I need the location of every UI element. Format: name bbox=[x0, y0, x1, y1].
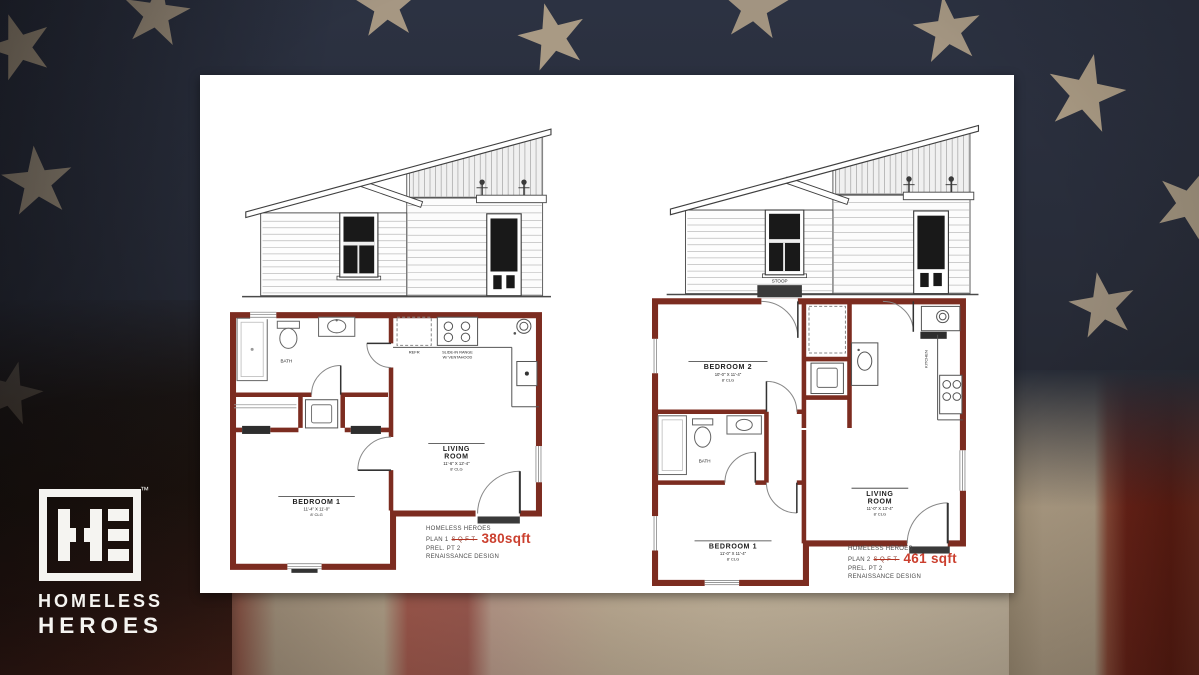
elevation-drawing-plan-2 bbox=[646, 87, 986, 303]
window bbox=[337, 213, 381, 280]
svg-text:ROOM: ROOM bbox=[868, 497, 892, 505]
svg-text:10'-0" X 11'-4": 10'-0" X 11'-4" bbox=[715, 372, 742, 377]
trademark-symbol: ™ bbox=[140, 485, 149, 495]
svg-text:LIVING: LIVING bbox=[443, 446, 470, 453]
bath-label: BATH bbox=[280, 359, 292, 364]
flag-star-icon: ★ bbox=[0, 0, 69, 99]
plan-1-caption: HOMELESS HEROES PLAN 1 SQFT 380sqft PREL… bbox=[426, 525, 601, 561]
svg-text:11'-0" X 13'-4": 11'-0" X 13'-4" bbox=[867, 506, 894, 511]
range-note-line2: W/ VENTAHOOD bbox=[443, 355, 473, 359]
drawings-panel: BATH REFR SLIDE-IN RANGE W/ VENTAHOOD LI… bbox=[200, 75, 1014, 593]
homeless-heroes-logo: ™ HOMELESS HEROES bbox=[38, 488, 188, 639]
refrigerator-label: REFR bbox=[409, 349, 420, 354]
caption-area-value: 380sqft bbox=[481, 533, 530, 544]
svg-text:11'-4" X 11'-0": 11'-4" X 11'-0" bbox=[304, 506, 331, 511]
caption-struck-sqft: SQFT bbox=[451, 536, 477, 544]
svg-text:11'-0" X 11'-4": 11'-0" X 11'-4" bbox=[720, 551, 747, 556]
entry-door bbox=[487, 214, 521, 296]
flag-stripes-right bbox=[1009, 370, 1199, 675]
flag-star-icon: ★ bbox=[0, 131, 83, 231]
range-note-line1: SLIDE-IN RANGE bbox=[442, 350, 473, 354]
window bbox=[762, 210, 806, 278]
svg-text:BEDROOM 2: BEDROOM 2 bbox=[704, 363, 752, 371]
washer-dryer bbox=[305, 400, 337, 428]
caption-struck-sqft: SQFT bbox=[873, 556, 899, 564]
logo-title-line2: HEROES bbox=[38, 613, 188, 639]
svg-text:STOOP: STOOP bbox=[772, 279, 788, 284]
kitchen-label: KITCHEN bbox=[923, 350, 928, 368]
flag-star-icon: ★ bbox=[711, 0, 797, 53]
logo-title-line1: HOMELESS bbox=[38, 591, 188, 612]
flag-star-icon: ★ bbox=[902, 0, 992, 78]
rear-section bbox=[833, 131, 974, 293]
svg-text:8' CLG: 8' CLG bbox=[727, 557, 739, 562]
svg-text:BEDROOM 1: BEDROOM 1 bbox=[293, 499, 341, 506]
rear-section bbox=[407, 135, 547, 296]
svg-text:8' CLG: 8' CLG bbox=[450, 467, 462, 472]
closet-door-tag bbox=[242, 426, 270, 434]
caption-plan-label: PLAN 2 bbox=[848, 556, 870, 564]
flag-star-icon: ★ bbox=[1136, 146, 1199, 260]
flag-star-icon: ★ bbox=[345, 0, 428, 51]
svg-text:11'-6" X 12'-4": 11'-6" X 12'-4" bbox=[443, 461, 470, 466]
svg-text:8' CLG: 8' CLG bbox=[722, 377, 734, 382]
flag-star-icon: ★ bbox=[1057, 256, 1148, 354]
caption-area-value: 461 sqft bbox=[903, 553, 956, 564]
svg-text:8' CLG: 8' CLG bbox=[874, 512, 886, 517]
closet-door-tag bbox=[920, 332, 946, 339]
svg-text:BEDROOM 1: BEDROOM 1 bbox=[709, 542, 757, 550]
flag-star-icon: ★ bbox=[112, 0, 200, 61]
caption-designer-line: RENAISSANCE DESIGN bbox=[426, 553, 601, 561]
plan-2-caption: HOMELESS HEROES PLAN 2 SQFT 461 sqft PRE… bbox=[848, 545, 1028, 581]
he-monogram-icon: ™ bbox=[38, 488, 142, 582]
svg-text:8' CLG: 8' CLG bbox=[310, 512, 322, 517]
svg-text:ROOM: ROOM bbox=[444, 454, 468, 461]
caption-designer-line: RENAISSANCE DESIGN bbox=[848, 573, 1028, 581]
flag-star-icon: ★ bbox=[1030, 34, 1141, 153]
caption-plan-label: PLAN 1 bbox=[426, 536, 448, 544]
elevation-drawing-plan-1 bbox=[222, 91, 558, 305]
floor-plan-2: STOOP bbox=[652, 276, 968, 588]
closet-door-tag bbox=[351, 426, 381, 434]
bath-label: BATH bbox=[699, 458, 711, 463]
